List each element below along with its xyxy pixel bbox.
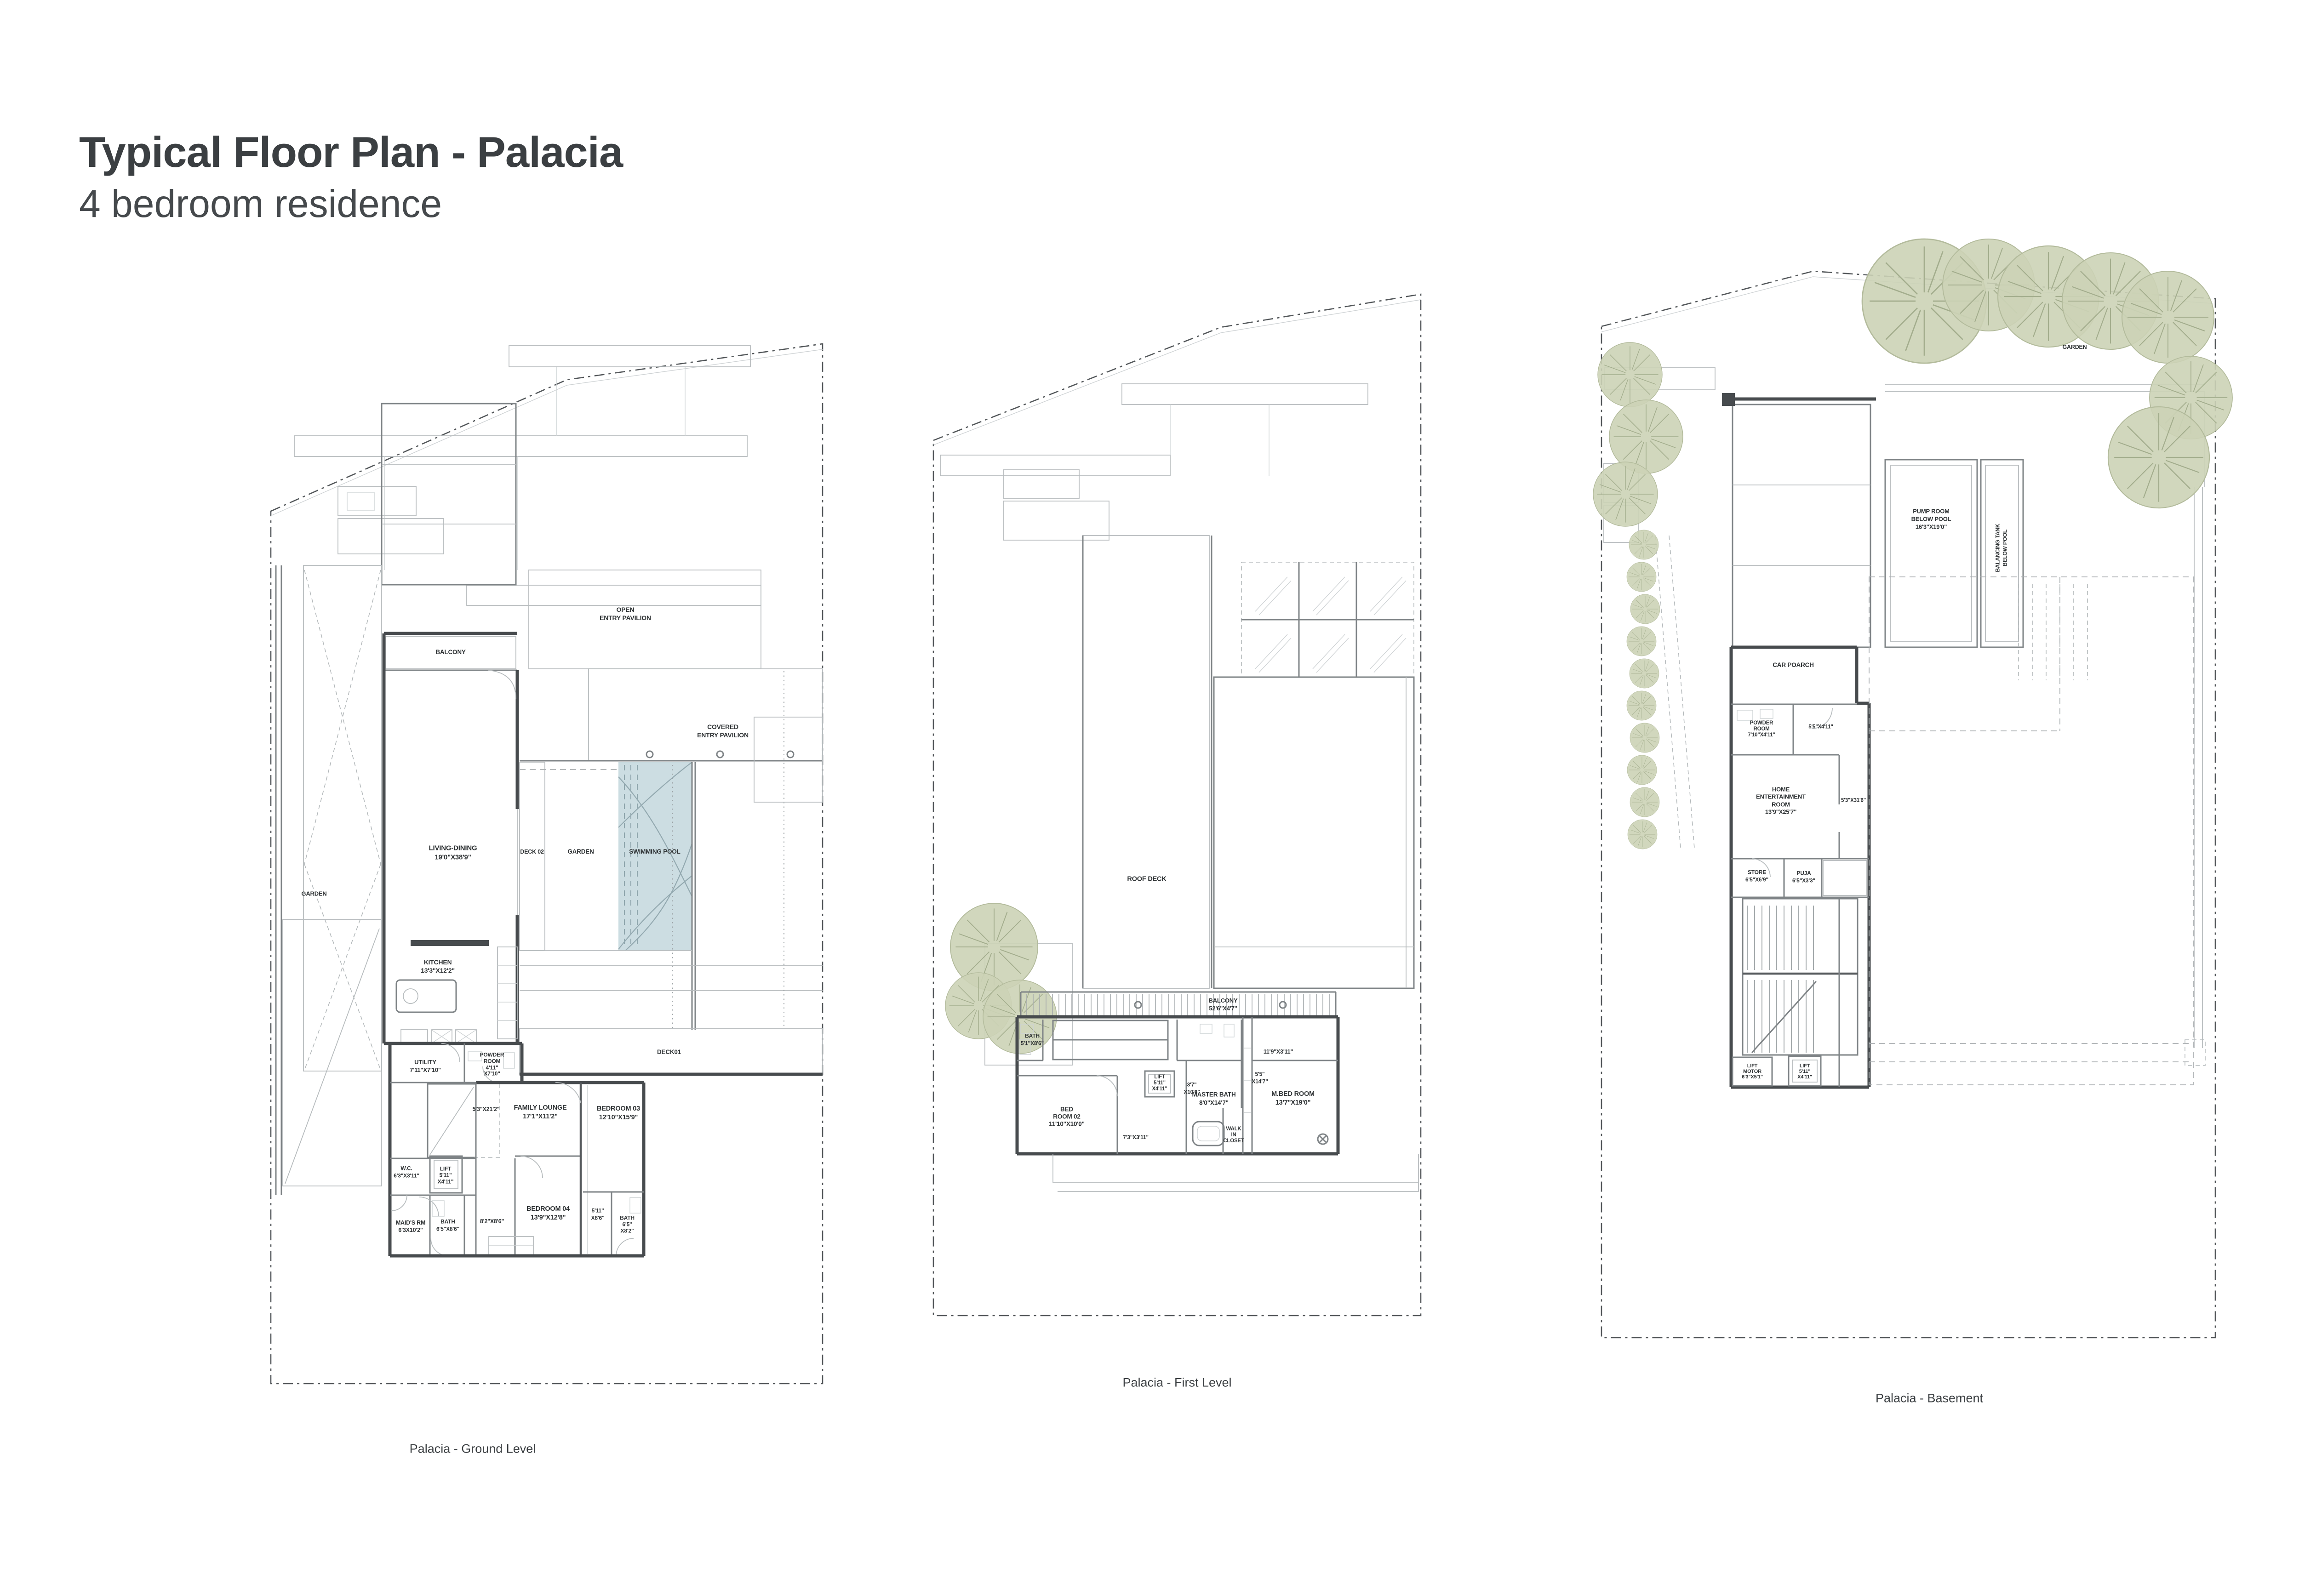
room-label-balcony-first: BALCONY 52'6"X4'7": [1209, 997, 1238, 1013]
first-level-linework: [933, 294, 1421, 1316]
caption-ground-level: Palacia - Ground Level: [410, 1442, 536, 1456]
sheet-title: Typical Floor Plan - Palacia 4 bedroom r…: [79, 130, 623, 226]
room-label-roof-deck: ROOF DECK: [1127, 875, 1166, 884]
room-label-home-entertainment: HOME ENTERTAINMENT ROOM 13'9"X25'7": [1756, 786, 1806, 816]
room-label-deck01: DECK01: [657, 1048, 681, 1056]
room-label-bath-left: BATH 6'5"X8'6": [436, 1218, 459, 1232]
room-label-lift-ground: LIFT 5'11" X4'11": [438, 1166, 454, 1185]
room-label-powder-room-basement: POWDER ROOM 7'10"X4'11": [1748, 720, 1775, 739]
room-label-deck02: DECK 02: [520, 848, 543, 855]
dim-label-corridor-5-11: 5'11" X8'6": [591, 1207, 605, 1221]
room-label-walk-in-closet: WALK IN CLOSET: [1223, 1126, 1244, 1145]
floor-plan-sheet: Typical Floor Plan - Palacia 4 bedroom r…: [0, 0, 2299, 1596]
room-label-car-porch: CAR POARCH: [1773, 661, 1814, 669]
room-label-lift-first: LIFT 5'11" X4'11": [1152, 1074, 1167, 1093]
room-label-bath-first: BATH 5'1"X8'6": [1021, 1032, 1044, 1047]
room-label-utility: UTILITY 7'11"X7'10": [410, 1059, 441, 1074]
dim-label-corridor-5-3: 5'3"X21'2": [473, 1106, 500, 1113]
room-label-maids-rm: MAID'S RM 6'3X10'2": [396, 1219, 425, 1234]
room-label-store: STORE 6'5"X6'9": [1745, 869, 1768, 883]
room-label-balcony-ground: BALCONY: [435, 648, 465, 656]
page-title: Typical Floor Plan - Palacia: [79, 130, 623, 175]
room-label-kitchen: KITCHEN 13'3"X12'2": [421, 958, 455, 975]
dim-label-corridor-5-3-basement: 5'3"X31'6": [1841, 798, 1866, 804]
room-label-family-lounge: FAMILY LOUNGE 17'1"X11'2": [514, 1104, 566, 1121]
room-label-powder-room-ground: POWDER ROOM 4'11" X7'10": [480, 1052, 504, 1077]
caption-basement: Palacia - Basement: [1876, 1391, 1983, 1406]
dim-label-corridor-11-9: 11'9"X3'11": [1264, 1048, 1293, 1055]
room-label-garden-basement: GARDEN: [2063, 343, 2087, 351]
room-label-living-dining: LIVING-DINING 19'0"X38'9": [429, 844, 477, 862]
dim-label-passage-8-2: 8'2"X8'6": [480, 1218, 504, 1225]
room-label-bedroom02: BED ROOM 02 11'10"X10'0": [1049, 1106, 1085, 1129]
floor-plan-drawing: [0, 0, 2299, 1596]
room-label-master-bath: MASTER BATH 8'0"X14'7": [1192, 1090, 1235, 1106]
room-label-covered-entry-pavilion: COVERED ENTRY PAVILION: [697, 723, 749, 739]
basement-linework: [1593, 239, 2232, 1338]
room-label-m-bedroom: M.BED ROOM 13'7"X19'0": [1271, 1090, 1315, 1107]
dim-label-corridor-5-5-first: 5'5" X14'7": [1252, 1071, 1268, 1085]
dim-label-corridor-7-3: 7'3"X3'11": [1123, 1134, 1149, 1141]
room-label-balancing-tank: BALANCING TANK BELOW POOL: [1994, 524, 2008, 572]
room-label-puja: PUJA 6'5"X3'3": [1792, 870, 1815, 884]
room-label-bedroom04: BEDROOM 04 13'9"X12'8": [526, 1205, 570, 1222]
room-label-wc: W.C. 6'3"X3'11": [394, 1165, 419, 1179]
caption-first-level: Palacia - First Level: [1122, 1376, 1231, 1390]
room-label-garden-center: GARDEN: [567, 848, 594, 856]
room-label-lift-motor: LIFT MOTOR 6'3"X5'1": [1742, 1063, 1763, 1080]
dim-label-corridor-5-5-basement: 5'5"X4'11": [1808, 724, 1833, 731]
room-label-open-entry-pavilion: OPEN ENTRY PAVILION: [600, 605, 651, 622]
ground-level-linework: [271, 344, 823, 1384]
room-label-bath-right: BATH 6'5" X8'2": [620, 1215, 635, 1234]
room-label-lift-basement: LIFT 5'11" X4'11": [1797, 1063, 1812, 1080]
room-label-swimming-pool: SWIMMING POOL: [629, 848, 680, 856]
room-label-bedroom03: BEDROOM 03 12'10"X15'9": [597, 1105, 640, 1122]
room-label-pump-room: PUMP ROOM BELOW POOL 16'3"X19'0": [1911, 508, 1951, 531]
room-label-garden-left: GARDEN: [301, 890, 326, 898]
page-subtitle: 4 bedroom residence: [79, 182, 623, 226]
